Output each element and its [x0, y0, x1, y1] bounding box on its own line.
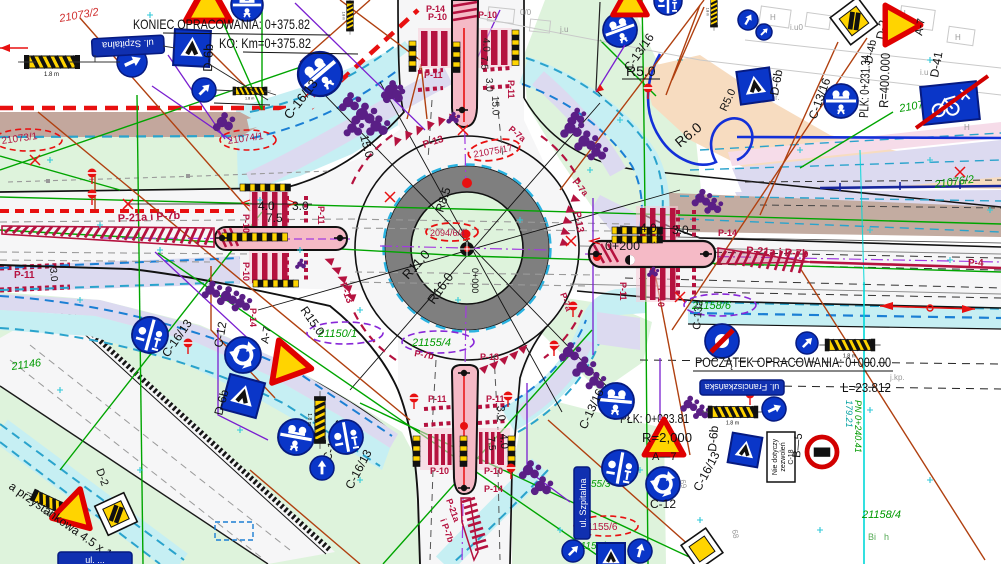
svg-text:i.u0: i.u0 — [790, 23, 803, 32]
svg-text:7.5: 7.5 — [478, 56, 489, 71]
svg-text:D-6b: D-6b — [705, 425, 721, 452]
svg-text:3.0: 3.0 — [672, 223, 689, 237]
svg-text:ul. Franciszkańska: ul. Franciszkańska — [705, 382, 780, 392]
svg-text:21158/4: 21158/4 — [861, 509, 901, 521]
svg-text:3.0: 3.0 — [494, 405, 507, 421]
svg-text:1.8 m: 1.8 m — [245, 97, 254, 101]
svg-text:3.0: 3.0 — [47, 267, 59, 282]
svg-text:H: H — [770, 13, 776, 22]
svg-text:1.8 m: 1.8 m — [341, 12, 345, 20]
svg-text:P-11: P-11 — [486, 394, 505, 404]
svg-text:1.8 m: 1.8 m — [44, 72, 59, 78]
svg-text:P-10: P-10 — [430, 466, 449, 476]
svg-text:ul. ...: ul. ... — [85, 555, 105, 564]
svg-text:P-10: P-10 — [241, 214, 251, 233]
svg-text:Bi: Bi — [868, 532, 876, 542]
svg-text:R=400.000: R=400.000 — [876, 53, 893, 108]
svg-text:PN 0+240.41: PN 0+240.41 — [853, 400, 863, 453]
svg-text:A—7: A—7 — [652, 451, 676, 463]
svg-text:zezwoleń: zezwoleń — [780, 442, 787, 471]
svg-text:4.0: 4.0 — [497, 433, 510, 449]
svg-text:7.5: 7.5 — [485, 436, 497, 451]
svg-text:P-14: P-14 — [484, 484, 503, 494]
svg-text:1.8 m: 1.8 m — [306, 413, 312, 426]
svg-text:4.0: 4.0 — [480, 38, 491, 53]
svg-text:KO: Km=0+375.82: KO: Km=0+375.82 — [219, 35, 311, 51]
svg-text:j.kp.: j.kp. — [889, 373, 905, 382]
svg-text:j.u: j.u — [559, 25, 568, 34]
svg-text:D-6b: D-6b — [200, 43, 216, 72]
svg-text:h: h — [884, 532, 889, 542]
svg-text:KONIEC OPRACOWANIA: 0+375.82: KONIEC OPRACOWANIA: 0+375.82 — [133, 16, 310, 32]
svg-text:21155/4: 21155/4 — [411, 337, 451, 349]
svg-text:3.0: 3.0 — [292, 199, 309, 213]
svg-text:1.8 m: 1.8 m — [705, 8, 709, 16]
svg-text:L=23.812: L=23.812 — [842, 380, 891, 395]
svg-text:P-14: P-14 — [248, 308, 258, 327]
svg-text:P-11: P-11 — [506, 80, 516, 99]
svg-text:H: H — [964, 123, 970, 132]
svg-text:P-11: P-11 — [428, 394, 447, 404]
svg-text:R=2,000: R=2,000 — [642, 431, 692, 445]
svg-text:PŁK: 0+023.81: PŁK: 0+023.81 — [620, 412, 689, 426]
svg-text:3.0: 3.0 — [483, 78, 494, 93]
svg-text:P-11: P-11 — [424, 70, 443, 80]
svg-text:7.5: 7.5 — [266, 211, 283, 225]
svg-text:15.0: 15.0 — [489, 96, 501, 116]
svg-text:1.8 m: 1.8 m — [843, 354, 857, 360]
svg-text:P-14: P-14 — [718, 228, 737, 238]
svg-text:P-11: P-11 — [14, 270, 35, 281]
svg-text:POCZĄTEK OPRACOWANIA: 0+000.00: POCZĄTEK OPRACOWANIA: 0+000.00 — [695, 354, 891, 370]
svg-text:Nie dotyczy: Nie dotyczy — [772, 438, 779, 475]
svg-text:P-11: P-11 — [618, 282, 628, 301]
svg-text:0/0: 0/0 — [520, 8, 532, 17]
svg-text:2094/6/4: 2094/6/4 — [430, 228, 465, 238]
svg-text:1.8 m: 1.8 m — [726, 421, 740, 427]
svg-text:P-13: P-13 — [480, 352, 499, 362]
svg-text:P-10: P-10 — [241, 262, 251, 281]
svg-text:P-4: P-4 — [968, 258, 984, 269]
svg-text:ul. Szpitalna: ul. Szpitalna — [578, 478, 588, 527]
svg-text:0+000: 0+000 — [470, 268, 480, 293]
svg-text:179.21: 179.21 — [844, 400, 854, 428]
svg-text:C-12: C-12 — [650, 497, 676, 511]
svg-text:H: H — [955, 33, 961, 42]
svg-text:7.5: 7.5 — [646, 232, 663, 246]
svg-text:P-10: P-10 — [428, 12, 447, 22]
svg-text:P-11: P-11 — [316, 206, 326, 225]
svg-text:P-10: P-10 — [484, 466, 503, 476]
svg-text:B—5: B—5 — [791, 433, 805, 458]
svg-text:P-10: P-10 — [656, 288, 666, 307]
svg-text:0+200: 0+200 — [605, 239, 640, 253]
